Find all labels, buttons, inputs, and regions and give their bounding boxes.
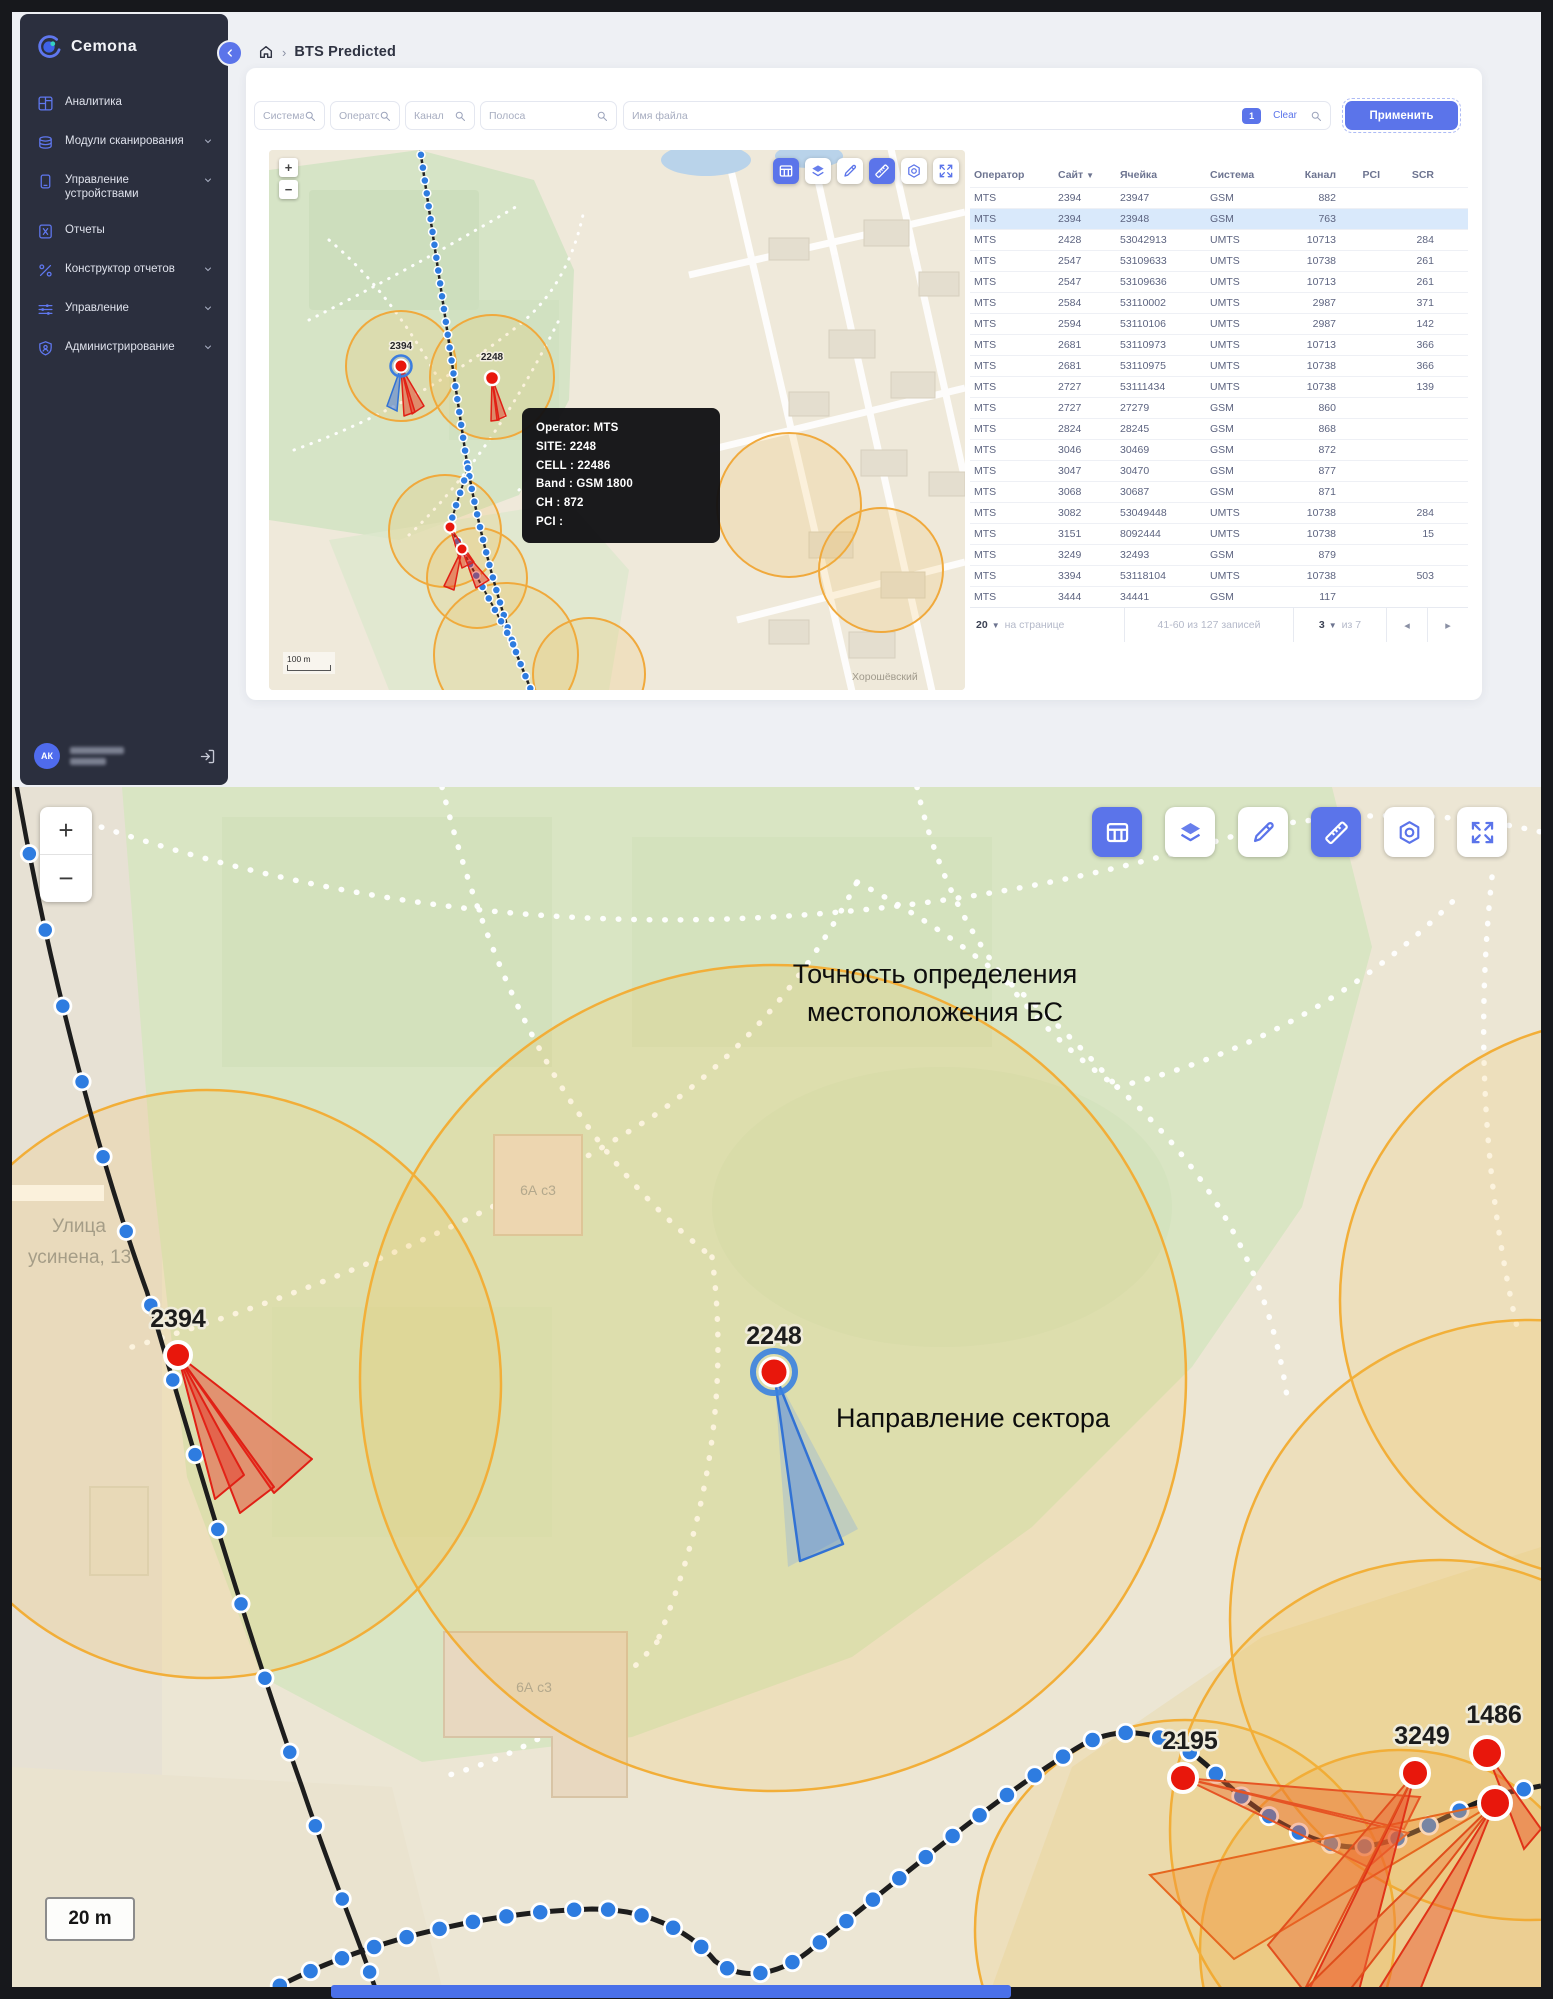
annotation-accuracy: Точность определения местоположения БС	[710, 955, 1160, 1031]
table-cell: 763	[1274, 213, 1336, 225]
marker-label: 2248	[481, 352, 504, 363]
table-cell: 53111434	[1120, 381, 1210, 393]
column-header[interactable]: Ячейка	[1120, 169, 1210, 181]
table-cell: 3444	[1058, 591, 1120, 603]
filter-filename-input[interactable]: Имя файла 1 Clear	[623, 101, 1331, 130]
prev-page-button[interactable]: ◂	[1386, 608, 1427, 642]
tooltip-channel: CH : 872	[536, 494, 706, 513]
chevron-down-icon	[202, 263, 214, 275]
table-cell: MTS	[970, 381, 1058, 393]
measure-button[interactable]	[869, 158, 895, 184]
page-of-label: из 7	[1342, 619, 1361, 631]
map-small[interactable]: 2394 2248 Хорошёвский + − Operator: MTS …	[269, 150, 965, 690]
table-cell: MTS	[970, 213, 1058, 225]
table-row[interactable]: MTS268153110975UMTS10738366	[970, 355, 1468, 376]
sidebar-item[interactable]: Управление устройствами	[20, 162, 228, 212]
table-cell: 868	[1274, 423, 1336, 435]
tooltip-operator: Operator: MTS	[536, 419, 706, 438]
table-cell: 10738	[1274, 507, 1336, 519]
app-window: Cemona АналитикаМодули сканированияУправ…	[12, 12, 1541, 787]
table-cell: 261	[1380, 255, 1438, 267]
draw-button[interactable]	[837, 158, 863, 184]
search-icon	[304, 110, 316, 122]
table-cell: UMTS	[1210, 276, 1274, 288]
table-cell: 2727	[1058, 402, 1120, 414]
table-cell: UMTS	[1210, 234, 1274, 246]
table-cell: MTS	[970, 318, 1058, 330]
filter-count-badge: 1	[1242, 108, 1261, 124]
sidebar-item-label: Отчеты	[65, 223, 105, 237]
table-cell: 2824	[1058, 423, 1120, 435]
column-header[interactable]: SCR	[1380, 169, 1438, 181]
column-header[interactable]: Канал	[1274, 169, 1336, 181]
table-cell: 2681	[1058, 339, 1120, 351]
table-cell: MTS	[970, 465, 1058, 477]
sidebar-item[interactable]: Отчеты	[20, 212, 228, 251]
building-label: 6А с3	[520, 1182, 556, 1198]
table-row[interactable]: MTS254753109636UMTS10713261	[970, 271, 1468, 292]
table-row[interactable]: MTS308253049448UMTS10738284	[970, 502, 1468, 523]
table-cell: 882	[1274, 192, 1336, 204]
filter-channel-input[interactable]: Канал	[405, 101, 475, 130]
filter-channel-placeholder: Канал	[414, 110, 454, 122]
table-row[interactable]: MTS324932493GSM879	[970, 544, 1468, 565]
column-header[interactable]: Оператор	[970, 169, 1058, 181]
table-cell: GSM	[1210, 192, 1274, 204]
table-cell: 2428	[1058, 234, 1120, 246]
table-cell: 2681	[1058, 360, 1120, 372]
sort-desc-icon: ▼	[1086, 171, 1094, 180]
column-header[interactable]: Система	[1210, 169, 1274, 181]
tooltip-pci: PCI :	[536, 513, 706, 532]
table-cell: 2987	[1274, 318, 1336, 330]
table-cell: 53109636	[1120, 276, 1210, 288]
table-cell: 371	[1380, 297, 1438, 309]
logo[interactable]: Cemona	[20, 14, 228, 84]
layers-icon	[1177, 819, 1204, 846]
table-cell: 879	[1274, 549, 1336, 561]
tooltip-site: SITE: 2248	[536, 438, 706, 457]
sidebar-item-label: Управление устройствами	[65, 173, 191, 201]
table-cell: 117	[1274, 591, 1336, 603]
table-cell: MTS	[970, 255, 1058, 267]
next-page-button[interactable]: ▸	[1427, 608, 1468, 642]
table-button[interactable]	[773, 158, 799, 184]
table-row[interactable]: MTS272727279GSM860	[970, 397, 1468, 418]
table-cell: 28245	[1120, 423, 1210, 435]
map-zoom-control: + −	[40, 807, 92, 902]
table-row[interactable]: MTS306830687GSM871	[970, 481, 1468, 502]
table-cell: 23948	[1120, 213, 1210, 225]
chevron-down-icon: ▼	[992, 621, 1000, 630]
table-cell: GSM	[1210, 465, 1274, 477]
page-number: 3	[1319, 619, 1325, 631]
table-icon	[778, 163, 794, 179]
street-label: усинена, 13	[28, 1247, 131, 1268]
table-cell: MTS	[970, 276, 1058, 288]
table-cell: MTS	[970, 297, 1058, 309]
search-icon	[379, 110, 391, 122]
table-body: MTS239423947GSM882MTS239423948GSM763MTS2…	[970, 187, 1468, 607]
map-scale: 20 m	[45, 1897, 135, 1941]
zoom-out-button[interactable]: −	[40, 855, 92, 902]
search-icon	[454, 110, 466, 122]
table-cell: MTS	[970, 528, 1058, 540]
table-cell: 53110106	[1120, 318, 1210, 330]
table-cell: 10713	[1274, 339, 1336, 351]
table-cell: 10738	[1274, 570, 1336, 582]
avatar[interactable]: АК	[34, 743, 60, 769]
table-cell: 872	[1274, 444, 1336, 456]
marker-label: 2195	[1162, 1727, 1218, 1755]
marker-label: 2394	[390, 341, 413, 352]
bottom-blue-bar	[331, 1985, 1011, 1998]
table-cell: MTS	[970, 570, 1058, 582]
page-size-value: 20	[976, 619, 988, 631]
table-cell: 34441	[1120, 591, 1210, 603]
map-toolbar	[773, 158, 959, 184]
chevron-down-icon	[202, 135, 214, 147]
screenshot-root: Cemona АналитикаМодули сканированияУправ…	[0, 0, 1553, 1999]
map-large[interactable]: 2394 2248 2195 3249 1486 Улица усинена, …	[12, 787, 1541, 1987]
table-cell: 2727	[1058, 381, 1120, 393]
table-cell: 27279	[1120, 402, 1210, 414]
settings-button[interactable]	[1384, 807, 1434, 857]
tooltip-band: Band : GSM 1800	[536, 475, 706, 494]
page-select[interactable]: 3 ▼ из 7	[1293, 608, 1386, 642]
sidebar: Cemona АналитикаМодули сканированияУправ…	[20, 14, 228, 785]
table-cell: 10713	[1274, 276, 1336, 288]
table-cell: 30470	[1120, 465, 1210, 477]
marker-label: 2248	[746, 1322, 802, 1350]
table-cell: 503	[1380, 570, 1438, 582]
scan-modules-icon	[37, 134, 54, 151]
table-cell: 53109633	[1120, 255, 1210, 267]
page-size-label: на странице	[1005, 619, 1065, 631]
chevron-down-icon	[202, 341, 214, 353]
table-cell: UMTS	[1210, 507, 1274, 519]
sidebar-item-label: Модули сканирования	[65, 134, 184, 148]
table-cell: 3394	[1058, 570, 1120, 582]
table-cell: GSM	[1210, 423, 1274, 435]
sidebar-item[interactable]: Управление	[20, 290, 228, 329]
table-row[interactable]: MTS304630469GSM872	[970, 439, 1468, 460]
table-cell: UMTS	[1210, 360, 1274, 372]
table-cell: 10738	[1274, 381, 1336, 393]
page-size-select[interactable]: 20 ▼ на странице	[970, 608, 1124, 642]
breadcrumb: › BTS Predicted	[258, 44, 396, 60]
marker-label: 1486	[1466, 1701, 1522, 1729]
sidebar-item[interactable]: Модули сканирования	[20, 123, 228, 162]
marker-3249[interactable]	[1401, 1759, 1429, 1787]
settings-icon	[906, 163, 922, 179]
sidebar-item-label: Управление	[65, 301, 129, 315]
table-cell: 284	[1380, 507, 1438, 519]
table-cell: 32493	[1120, 549, 1210, 561]
table-row[interactable]: MTS272753111434UMTS10738139	[970, 376, 1468, 397]
table-cell: MTS	[970, 234, 1058, 246]
logout-icon[interactable]	[199, 748, 216, 765]
breadcrumb-separator: ›	[282, 45, 286, 60]
table-cell: MTS	[970, 339, 1058, 351]
table-cell: 53049448	[1120, 507, 1210, 519]
zoom-in-button[interactable]: +	[279, 158, 298, 177]
layers-button[interactable]	[1165, 807, 1215, 857]
table-row[interactable]: MTS242853042913UMTS10713284	[970, 229, 1468, 250]
settings-button[interactable]	[901, 158, 927, 184]
table-row[interactable]: MTS258453110002UMTS2987371	[970, 292, 1468, 313]
table-cell: GSM	[1210, 486, 1274, 498]
table-cell: MTS	[970, 507, 1058, 519]
fullscreen-button[interactable]	[1457, 807, 1507, 857]
filter-operator-input[interactable]: Оператор	[330, 101, 400, 130]
table-pagination: 20 ▼ на странице 41-60 из 127 записей 3 …	[970, 607, 1468, 642]
table-cell: 366	[1380, 339, 1438, 351]
table-cell: 142	[1380, 318, 1438, 330]
table-cell: 10738	[1274, 255, 1336, 267]
chevron-down-icon	[202, 302, 214, 314]
table-cell: 2584	[1058, 297, 1120, 309]
table-row[interactable]: MTS31518092444UMTS1073815	[970, 523, 1468, 544]
devices-icon	[37, 173, 54, 190]
analytics-icon	[37, 95, 54, 112]
table-cell: UMTS	[1210, 570, 1274, 582]
chevron-left-icon	[224, 47, 236, 59]
table-cell: 871	[1274, 486, 1336, 498]
filter-system-placeholder: Система	[263, 110, 304, 122]
table-header-row: ОператорСайт▼ЯчейкаСистемаКаналPCISCR	[970, 163, 1468, 187]
table-cell: 53042913	[1120, 234, 1210, 246]
table-cell: 3249	[1058, 549, 1120, 561]
table-cell: 10738	[1274, 528, 1336, 540]
marker-2248-small[interactable]	[485, 371, 499, 385]
search-icon	[596, 110, 608, 122]
table-cell: 15	[1380, 528, 1438, 540]
user-row: АК	[34, 743, 216, 769]
table-cell: GSM	[1210, 591, 1274, 603]
zoom-in-button[interactable]: +	[40, 807, 92, 855]
reports-icon	[37, 223, 54, 240]
sidebar-item-label: Аналитика	[65, 95, 122, 109]
annotation-sector-direction: Направление сектора	[836, 1403, 1110, 1434]
table-row[interactable]: MTS239423948GSM763	[970, 208, 1468, 229]
sidebar-item-label: Конструктор отчетов	[65, 262, 175, 276]
logo-text: Cemona	[71, 38, 137, 56]
table-cell: 2987	[1274, 297, 1336, 309]
table-cell: 3082	[1058, 507, 1120, 519]
table-cell: 53110975	[1120, 360, 1210, 372]
table-cell: MTS	[970, 402, 1058, 414]
column-header[interactable]: Сайт▼	[1058, 169, 1120, 181]
table-cell: MTS	[970, 591, 1058, 603]
bts-table: ОператорСайт▼ЯчейкаСистемаКаналPCISCR MT…	[970, 163, 1468, 642]
table-row[interactable]: MTS268153110973UMTS10713366	[970, 334, 1468, 355]
fullscreen-button[interactable]	[933, 158, 959, 184]
chevron-down-icon: ▼	[1329, 621, 1337, 630]
report-builder-icon	[37, 262, 54, 279]
column-header[interactable]: PCI	[1336, 169, 1380, 181]
administration-icon	[37, 340, 54, 357]
draw-button[interactable]	[1238, 807, 1288, 857]
table-cell: 30469	[1120, 444, 1210, 456]
building-label: 6А с3	[516, 1679, 552, 1695]
fullscreen-icon	[938, 163, 954, 179]
table-cell: 261	[1380, 276, 1438, 288]
search-icon[interactable]	[1310, 110, 1322, 122]
measure-icon	[874, 163, 890, 179]
content-card: Система Оператор Канал Полоса Имя файла …	[246, 68, 1482, 700]
home-icon[interactable]	[258, 44, 274, 60]
table-cell: 10738	[1274, 360, 1336, 372]
table-row[interactable]: MTS239423947GSM882	[970, 187, 1468, 208]
table-cell: MTS	[970, 486, 1058, 498]
table-cell: MTS	[970, 549, 1058, 561]
table-cell: GSM	[1210, 402, 1274, 414]
scale-label: 100 m	[287, 654, 331, 664]
filter-filename-placeholder: Имя файла	[632, 110, 1242, 122]
settings-icon	[1396, 819, 1423, 846]
map-scale: 100 m	[283, 652, 335, 674]
table-cell: 53110973	[1120, 339, 1210, 351]
map-tooltip: Operator: MTS SITE: 2248 CELL : 22486 Ba…	[522, 408, 720, 543]
table-cell: 10713	[1274, 234, 1336, 246]
table-cell: MTS	[970, 423, 1058, 435]
page-title: BTS Predicted	[294, 44, 396, 60]
clear-filter-link[interactable]: Clear	[1273, 110, 1297, 121]
table-cell: 30687	[1120, 486, 1210, 498]
sidebar-nav: АналитикаМодули сканированияУправление у…	[20, 84, 228, 368]
table-cell: 23947	[1120, 192, 1210, 204]
district-label: Хорошёвский	[852, 671, 918, 683]
table-row[interactable]: MTS344434441GSM117	[970, 586, 1468, 607]
table-row[interactable]: MTS259453110106UMTS2987142	[970, 313, 1468, 334]
sidebar-item[interactable]: Администрирование	[20, 329, 228, 368]
tooltip-cell: CELL : 22486	[536, 457, 706, 476]
table-cell: UMTS	[1210, 318, 1274, 330]
zoom-out-button[interactable]: −	[279, 180, 298, 199]
measure-icon	[1323, 819, 1350, 846]
table-cell: MTS	[970, 360, 1058, 372]
table-cell: 2394	[1058, 192, 1120, 204]
table-icon	[1104, 819, 1131, 846]
table-cell: GSM	[1210, 549, 1274, 561]
table-cell: 3047	[1058, 465, 1120, 477]
logo-icon	[36, 34, 62, 60]
records-range: 41-60 из 127 записей	[1124, 608, 1293, 642]
draw-icon	[1250, 819, 1277, 846]
table-row[interactable]: MTS282428245GSM868	[970, 418, 1468, 439]
management-icon	[37, 301, 54, 318]
marker-2394-small[interactable]	[391, 356, 412, 377]
table-cell: UMTS	[1210, 339, 1274, 351]
table-cell: 53118104	[1120, 570, 1210, 582]
table-cell: 2547	[1058, 276, 1120, 288]
table-cell: UMTS	[1210, 255, 1274, 267]
username-blurred	[70, 747, 124, 765]
table-row[interactable]: MTS304730470GSM877	[970, 460, 1468, 481]
sidebar-item[interactable]: Аналитика	[20, 84, 228, 123]
table-cell: 366	[1380, 360, 1438, 372]
table-cell: MTS	[970, 192, 1058, 204]
table-cell: UMTS	[1210, 381, 1274, 393]
table-row[interactable]: MTS254753109633UMTS10738261	[970, 250, 1468, 271]
table-cell: 3151	[1058, 528, 1120, 540]
fullscreen-icon	[1469, 819, 1496, 846]
filter-operator-placeholder: Оператор	[339, 110, 379, 122]
table-cell: 3068	[1058, 486, 1120, 498]
map-toolbar	[1092, 807, 1507, 857]
apply-button[interactable]: Применить	[1345, 101, 1458, 130]
draw-icon	[842, 163, 858, 179]
table-cell: 8092444	[1120, 528, 1210, 540]
filter-system-input[interactable]: Система	[254, 101, 325, 130]
sidebar-item[interactable]: Конструктор отчетов	[20, 251, 228, 290]
marker-label: 2394	[150, 1305, 206, 1333]
table-cell: 139	[1380, 381, 1438, 393]
table-cell: UMTS	[1210, 297, 1274, 309]
table-cell: MTS	[970, 444, 1058, 456]
table-cell: 2394	[1058, 213, 1120, 225]
table-cell: GSM	[1210, 444, 1274, 456]
street-label: Улица	[52, 1216, 106, 1237]
table-cell: 2547	[1058, 255, 1120, 267]
marker-label: 3249	[1394, 1722, 1450, 1750]
table-cell: 2594	[1058, 318, 1120, 330]
table-cell: 53110002	[1120, 297, 1210, 309]
chevron-down-icon	[202, 174, 214, 186]
sidebar-collapse-button[interactable]	[217, 40, 243, 66]
table-row[interactable]: MTS339453118104UMTS10738503	[970, 565, 1468, 586]
table-cell: 877	[1274, 465, 1336, 477]
marker-2195[interactable]	[1169, 1764, 1197, 1792]
table-cell: 3046	[1058, 444, 1120, 456]
marker-2394[interactable]	[165, 1342, 191, 1368]
layers-icon	[810, 163, 826, 179]
table-cell: 860	[1274, 402, 1336, 414]
measure-button[interactable]	[1311, 807, 1361, 857]
filter-band-placeholder: Полоса	[489, 110, 596, 122]
layers-button[interactable]	[805, 158, 831, 184]
sidebar-item-label: Администрирование	[65, 340, 175, 354]
table-cell: 284	[1380, 234, 1438, 246]
table-cell: GSM	[1210, 213, 1274, 225]
table-cell: UMTS	[1210, 528, 1274, 540]
filter-band-input[interactable]: Полоса	[480, 101, 617, 130]
marker-2248[interactable]	[753, 1351, 795, 1393]
table-button[interactable]	[1092, 807, 1142, 857]
map-zoom-control: + −	[279, 158, 298, 202]
